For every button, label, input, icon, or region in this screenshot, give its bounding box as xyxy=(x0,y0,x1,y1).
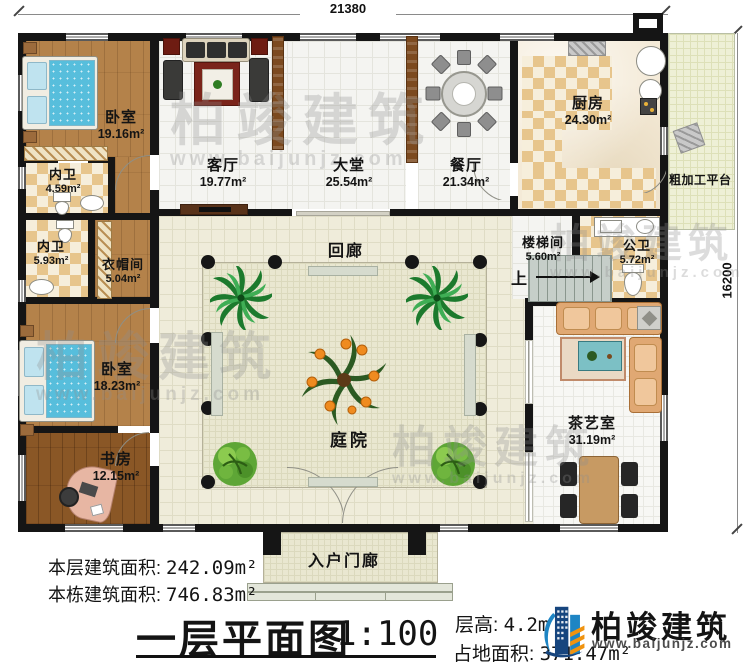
chair xyxy=(457,122,471,137)
cushion xyxy=(186,42,205,58)
room-area: 25.54m² xyxy=(304,175,394,189)
window xyxy=(163,524,195,532)
tearoom-slider-window xyxy=(525,340,533,404)
kitchen-sink-icon xyxy=(636,46,666,76)
room-area: 5.04m² xyxy=(90,273,156,285)
room-label-bedroom2: 卧室 18.23m² xyxy=(72,362,162,393)
room-label-porch: 入户门廊 xyxy=(308,547,380,571)
room-name: 公卫 xyxy=(606,239,668,254)
building-area-value: 746.83m² xyxy=(166,584,258,606)
chair xyxy=(457,50,471,65)
building-area-line: 本栋建筑面积: 746.83m² xyxy=(48,581,258,607)
wall-interior xyxy=(18,297,150,304)
room-label-courtyard: 庭院 xyxy=(330,426,370,451)
room-label-bedroom1: 卧室 19.16m² xyxy=(76,110,166,141)
land-label: 占地面积: xyxy=(453,644,534,665)
room-name: 大堂 xyxy=(304,158,394,175)
room-area: 5.93m² xyxy=(18,255,84,267)
cushion xyxy=(228,42,247,58)
tv-icon xyxy=(199,207,231,212)
stove-icon xyxy=(640,98,657,115)
cushion xyxy=(563,307,590,330)
window xyxy=(66,33,108,41)
tv-cabinet xyxy=(180,204,248,215)
wall-interior xyxy=(18,213,150,220)
wall-interior xyxy=(150,190,159,308)
room-area: 18.23m² xyxy=(72,379,162,393)
nightstand xyxy=(20,424,34,436)
window xyxy=(18,280,26,302)
room-area: 19.16m² xyxy=(76,127,166,141)
stairs-up-label: 上 xyxy=(511,265,527,289)
window xyxy=(300,33,356,41)
fruit-tree-icon xyxy=(300,332,388,426)
room-area: 31.19m² xyxy=(552,433,632,447)
tea-sofa xyxy=(629,337,662,413)
side-table xyxy=(163,38,180,55)
room-area: 24.30m² xyxy=(543,113,633,127)
planter xyxy=(464,334,476,416)
plan-scale: 1:100 xyxy=(336,614,438,654)
window xyxy=(660,127,668,155)
column-dot xyxy=(473,255,487,269)
nightstand xyxy=(20,325,34,337)
room-area: 12.15m² xyxy=(71,469,161,483)
porch-step-line xyxy=(385,592,386,601)
window xyxy=(18,455,26,501)
room-label-stairwell: 楼梯间 5.60m² xyxy=(512,236,574,263)
planter xyxy=(308,477,378,487)
porch-step xyxy=(247,583,453,592)
height-line: 层高: 4.2m xyxy=(455,610,549,637)
wall-interior xyxy=(510,33,518,163)
room-label-bath2: 内卫 5.93m² xyxy=(18,240,84,267)
floor-area-line: 本层建筑面积: 242.09m² xyxy=(48,554,258,580)
room-area: 5.60m² xyxy=(512,251,574,263)
room-label-corridor: 回廊 xyxy=(328,237,364,261)
room-label-platform: 粗加工平台 xyxy=(669,171,732,188)
cup-icon xyxy=(607,354,612,359)
building-area-label: 本栋建筑面积: xyxy=(48,585,161,605)
sink-icon xyxy=(29,279,54,295)
porch-step xyxy=(247,592,453,601)
entrance-door-arc xyxy=(287,467,343,523)
sink-icon xyxy=(80,195,104,211)
room-name: 厨房 xyxy=(543,96,633,113)
side-table xyxy=(637,306,661,330)
room-name: 卧室 xyxy=(72,362,162,379)
porch-pillar xyxy=(408,524,426,555)
watermark-text: 柏竣建筑 xyxy=(170,89,434,152)
door-arc xyxy=(634,161,666,193)
room-label-study: 书房 12.15m² xyxy=(71,452,161,483)
palm-plant-icon xyxy=(406,266,468,330)
window xyxy=(440,524,468,532)
room-name: 内卫 xyxy=(18,240,84,255)
room-name: 餐厅 xyxy=(421,158,511,175)
plant-icon xyxy=(587,351,597,361)
window xyxy=(18,167,26,189)
watermark-url: www.baijunjz.com xyxy=(392,471,596,487)
wall-interior xyxy=(108,157,115,215)
dimension-line-right xyxy=(737,33,738,533)
room-label-dining: 餐厅 21.34m² xyxy=(421,158,511,189)
window xyxy=(560,524,618,532)
wall-interior xyxy=(512,209,668,216)
cushion xyxy=(207,42,226,58)
room-area: 4.59m² xyxy=(30,183,96,195)
room-area: 21.34m² xyxy=(421,175,511,189)
floor-area-label: 本层建筑面积: xyxy=(48,558,161,578)
coffee-table xyxy=(578,341,622,371)
pillow xyxy=(27,96,47,124)
chimney xyxy=(633,13,663,34)
room-name: 衣帽间 xyxy=(90,258,156,273)
title-underline xyxy=(136,655,436,658)
cushion xyxy=(634,378,657,406)
dining-table xyxy=(441,71,487,117)
watermark-url: www.baijunjz.com xyxy=(550,265,743,280)
window xyxy=(65,524,123,532)
office-chair xyxy=(59,487,79,507)
room-label-hall: 大堂 25.54m² xyxy=(304,158,394,189)
floor-area-value: 242.09m² xyxy=(166,557,258,579)
chair xyxy=(488,87,503,101)
planter xyxy=(308,266,378,276)
room-label-tearoom: 茶艺室 31.19m² xyxy=(552,416,632,447)
wall-tearoom xyxy=(525,306,533,340)
burner xyxy=(644,102,648,106)
sofa xyxy=(182,38,250,62)
chair xyxy=(621,494,638,518)
room-label-cloakroom: 衣帽间 5.04m² xyxy=(90,258,156,285)
room-name: 楼梯间 xyxy=(512,236,574,251)
brand-url: www.baijunjz.com xyxy=(592,636,733,651)
pillow xyxy=(27,62,47,90)
chair xyxy=(560,494,577,518)
cushion xyxy=(634,344,657,372)
brand-logo-icon xyxy=(538,601,588,659)
porch-pillar xyxy=(263,524,281,555)
burner xyxy=(650,108,654,112)
room-name: 书房 xyxy=(71,452,161,469)
hall-threshold xyxy=(296,211,390,216)
side-table xyxy=(251,38,268,55)
room-label-living: 客厅 19.77m² xyxy=(178,158,268,189)
room-area: 5.72m² xyxy=(606,254,668,266)
room-label-bath1: 内卫 4.59m² xyxy=(30,168,96,195)
chair xyxy=(621,462,638,486)
room-name: 内卫 xyxy=(30,168,96,183)
tree-icon xyxy=(211,440,259,488)
wall-outer-right xyxy=(660,33,668,532)
room-label-kitchen: 厨房 24.30m² xyxy=(543,96,633,127)
wardrobe xyxy=(24,146,108,161)
dining-table-center xyxy=(452,82,476,106)
room-name: 客厅 xyxy=(178,158,268,175)
dimension-top-value: 21380 xyxy=(300,1,396,16)
cushion xyxy=(595,307,622,330)
palm-plant-icon xyxy=(210,266,272,330)
room-name: 卧室 xyxy=(76,110,166,127)
entrance-door-arc xyxy=(342,467,398,523)
plant-icon xyxy=(213,80,222,89)
porch-step-line xyxy=(315,592,316,601)
decor xyxy=(642,311,658,327)
room-area: 19.77m² xyxy=(178,175,268,189)
cutting-board-icon xyxy=(568,41,606,56)
floor-plan: 21380 16200 xyxy=(0,0,750,669)
door-arc xyxy=(115,155,150,190)
room-name: 茶艺室 xyxy=(552,416,632,433)
wall-interior xyxy=(390,209,512,216)
nightstand xyxy=(23,131,37,143)
window xyxy=(500,33,554,41)
nightstand xyxy=(23,42,37,54)
room-label-publicbath: 公卫 5.72m² xyxy=(606,239,668,266)
height-label: 层高: xyxy=(455,615,498,636)
